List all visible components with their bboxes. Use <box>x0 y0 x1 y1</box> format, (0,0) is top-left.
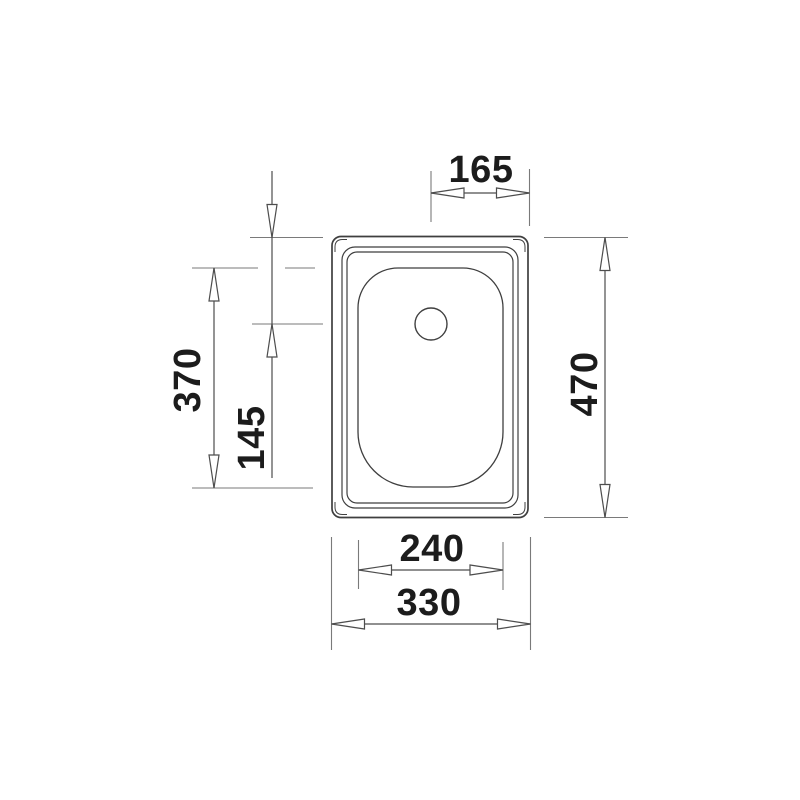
sink-corner-detail-top-right <box>513 240 525 253</box>
sink-dimension-diagram: 165 470 370 145 240 330 <box>0 0 800 800</box>
arrow-370-top <box>209 268 219 301</box>
dimension-labels-group: 165 470 370 145 240 330 <box>167 149 606 624</box>
arrow-240-right <box>470 565 503 575</box>
dim-label-330: 330 <box>397 582 462 624</box>
dim-label-370: 370 <box>167 348 209 413</box>
arrow-145-top <box>267 205 277 238</box>
arrow-470-bottom <box>600 485 610 518</box>
arrow-330-left <box>332 619 365 629</box>
drain-hole <box>415 308 447 340</box>
sink-corner-detail-top-left <box>335 240 347 253</box>
drawing-canvas: 165 470 370 145 240 330 <box>0 0 800 800</box>
sink-bowl <box>358 268 503 487</box>
dim-label-145: 145 <box>231 406 273 471</box>
dim-label-165: 165 <box>449 149 514 191</box>
sink-rim-inner <box>347 252 513 503</box>
arrow-240-left <box>359 565 392 575</box>
sink-rim-outer <box>342 247 518 508</box>
arrow-370-bottom <box>209 455 219 488</box>
sink-outer-edge <box>332 237 528 518</box>
arrow-330-right <box>498 619 531 629</box>
arrow-145-bottom <box>267 324 277 357</box>
arrow-470-top <box>600 238 610 271</box>
dim-label-470: 470 <box>564 352 606 417</box>
dim-label-240: 240 <box>400 528 465 570</box>
sink-outline-group <box>332 237 528 518</box>
